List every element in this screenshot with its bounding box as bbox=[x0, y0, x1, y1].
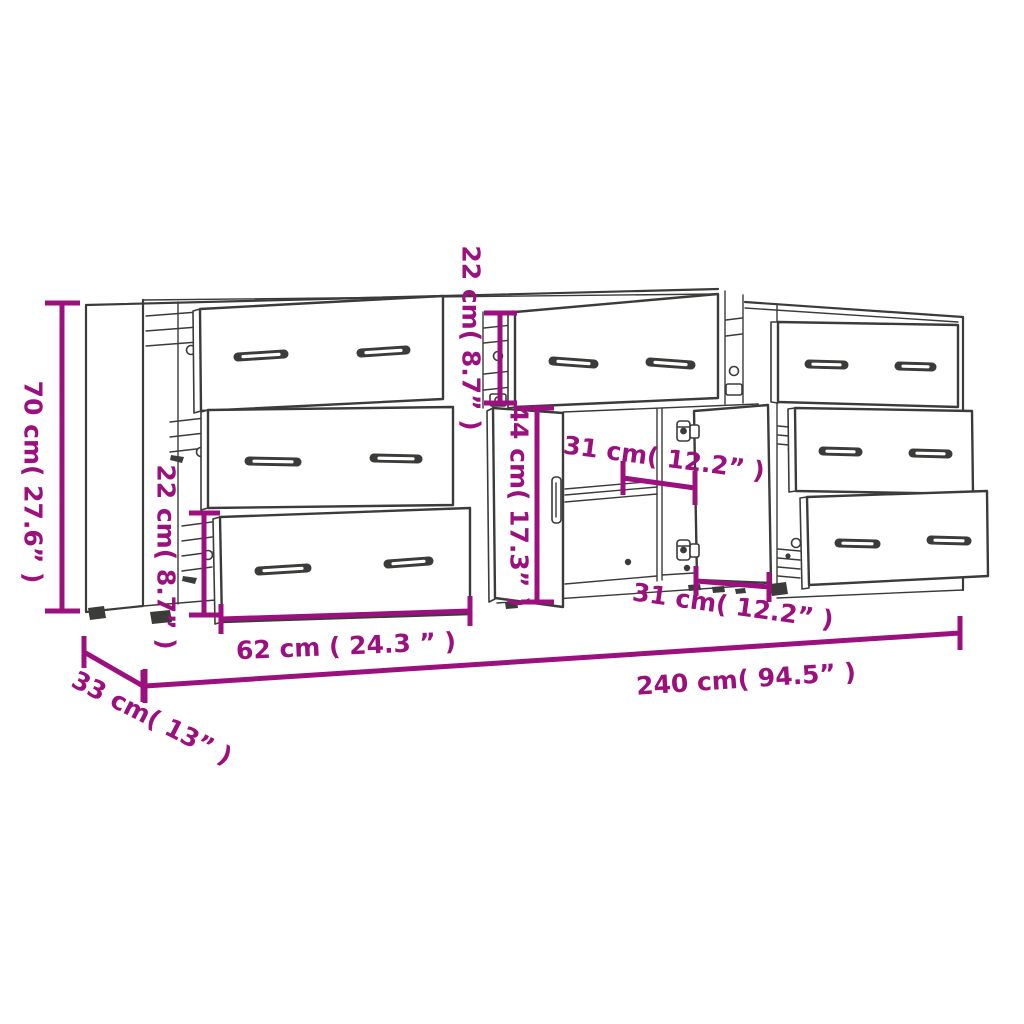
right-sideboard bbox=[745, 302, 988, 598]
shelf-pin-hole bbox=[625, 559, 631, 565]
left-drawer-bottom bbox=[213, 508, 470, 624]
middle-drawer-top bbox=[508, 294, 718, 408]
shelf-pin-hole bbox=[684, 565, 690, 571]
dimension-label-drawer-section-left: 22 cm( 8.7” ) bbox=[152, 464, 181, 649]
left-drawer-top bbox=[193, 296, 443, 413]
foot bbox=[88, 606, 106, 620]
dimension-depth: 33 cm( 13” ) bbox=[67, 636, 237, 771]
dimension-label-door-height: 44 cm( 17.3” ) bbox=[505, 405, 534, 608]
gap-strip bbox=[725, 291, 743, 404]
right-drawer-middle bbox=[788, 408, 973, 494]
dimension-height-total: 70 cm( 27.6” ) bbox=[19, 303, 81, 611]
product-dimension-diagram: 70 cm( 27.6” ) 22 cm( 8.7” ) 22 cm( 8.7”… bbox=[0, 0, 1024, 1024]
left-drawer-middle bbox=[201, 407, 453, 510]
right-drawer-top bbox=[771, 322, 958, 407]
dimension-label-top-section-middle: 22 cm( 8.7” ) bbox=[457, 245, 486, 430]
right-door-open bbox=[677, 405, 771, 583]
shelf bbox=[565, 481, 657, 502]
dimension-label-width-total: 240 cm( 94.5” ) bbox=[635, 657, 857, 701]
diagram-canvas: 70 cm( 27.6” ) 22 cm( 8.7” ) 22 cm( 8.7”… bbox=[0, 0, 1024, 1024]
foot bbox=[770, 582, 788, 596]
right-drawer-bottom bbox=[800, 491, 988, 589]
dimension-label-drawer-front-width: 62 cm ( 24.3 ” ) bbox=[235, 627, 456, 666]
dimension-label-height-total: 70 cm( 27.6” ) bbox=[19, 381, 48, 584]
